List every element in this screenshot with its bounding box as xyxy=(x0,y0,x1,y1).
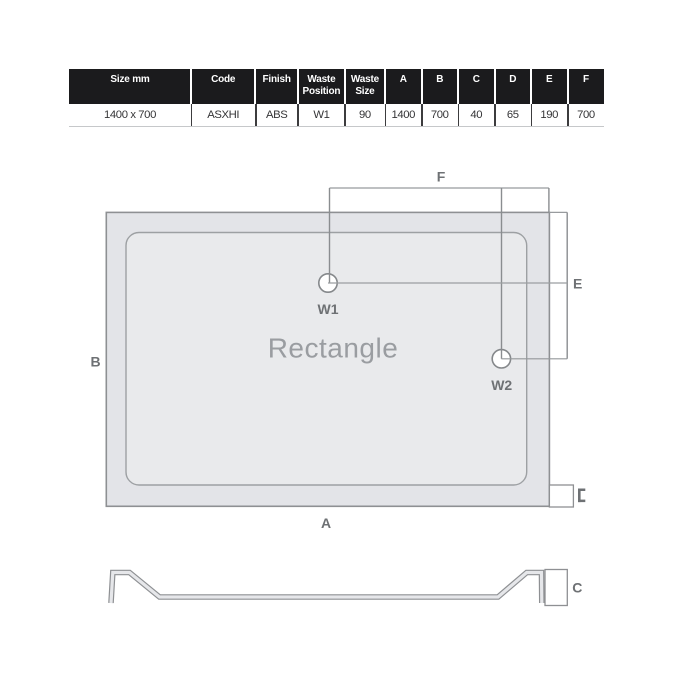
svg-text:C: C xyxy=(572,580,582,596)
svg-text:W2: W2 xyxy=(491,377,512,393)
svg-text:A: A xyxy=(321,515,331,531)
svg-text:W1: W1 xyxy=(318,301,339,317)
svg-text:Rectangle: Rectangle xyxy=(268,333,399,364)
svg-text:F: F xyxy=(437,169,446,185)
svg-text:E: E xyxy=(573,276,582,292)
svg-text:B: B xyxy=(91,354,101,370)
